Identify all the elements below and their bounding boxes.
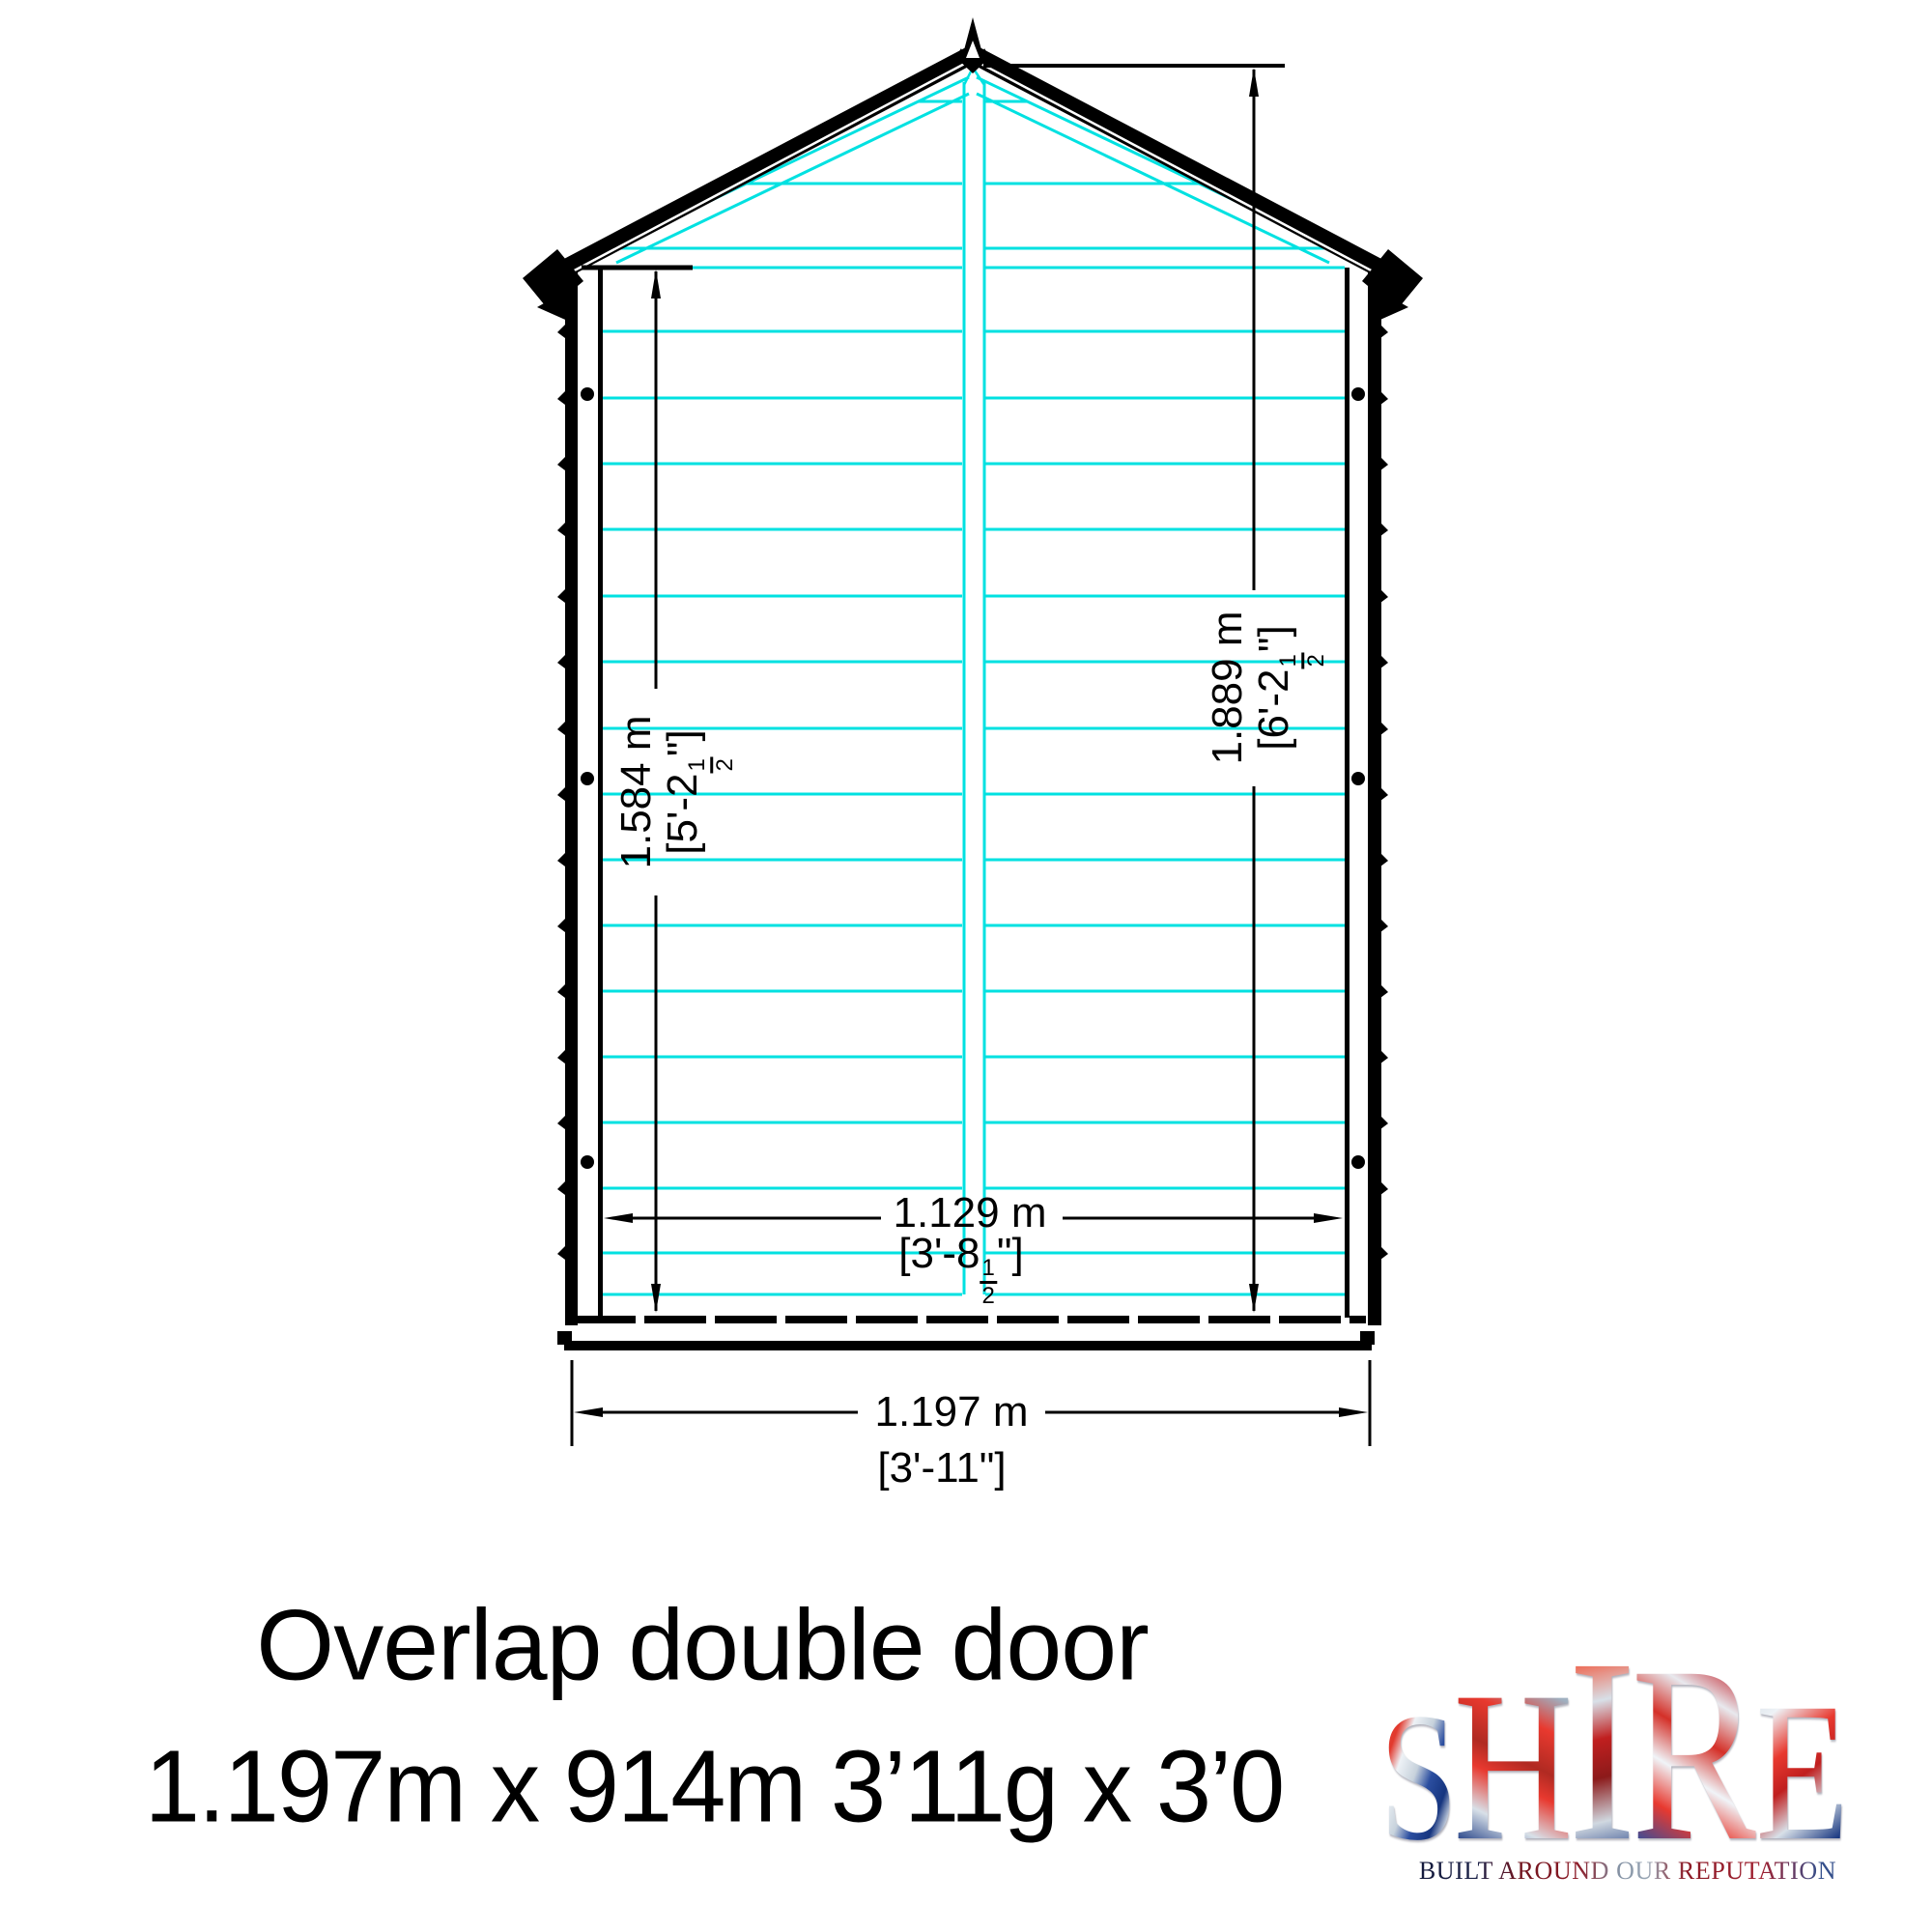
fraction-denominator: 2 <box>982 1284 995 1308</box>
dim-right-height-label: 1.889 m [6'-212"] <box>1205 611 1328 765</box>
imp-prefix: [5'-2 <box>659 773 706 854</box>
fraction-denominator: 2 <box>1304 654 1328 667</box>
left-wall-inner <box>598 268 603 1318</box>
right-wall-inner <box>1345 268 1350 1318</box>
imp-prefix: [3'-8 <box>898 1230 980 1277</box>
logo-letter-s: S <box>1379 1686 1454 1869</box>
dim-outer-width-imperial: [3'-11"] <box>877 1445 1006 1492</box>
fraction-numerator: 1 <box>1277 652 1304 668</box>
fraction-numerator: 1 <box>980 1257 997 1284</box>
dim-inner-width-imperial: [3'-812"] <box>898 1231 1023 1308</box>
fraction: 12 <box>1277 652 1328 668</box>
logo-letter-i: I <box>1569 1619 1632 1882</box>
fraction-numerator: 1 <box>686 756 713 773</box>
imp-suffix: "] <box>659 729 706 756</box>
shed-elevation-drawing: 1.584 m [5'-212"] 1.889 m [6'-212"] 1.12… <box>0 0 1932 1932</box>
right-wall-outer <box>1368 264 1381 1325</box>
product-title: Overlap double door <box>256 1589 1148 1704</box>
dim-left-height-label: 1.584 m [5'-212"] <box>613 716 737 869</box>
logo-tagline: BUILT AROUND OUR REPUTATION <box>1419 1857 1836 1886</box>
product-dimensions-text: 1.197m x 914m 3’11g x 3’0 <box>145 1729 1283 1846</box>
imp-prefix: [6'-2 <box>1250 668 1297 750</box>
logo-letter-r: R <box>1632 1629 1756 1880</box>
door-centre-frame <box>964 82 984 1294</box>
fraction: 12 <box>980 1257 997 1308</box>
left-wall-outer <box>565 264 578 1325</box>
dim-left-height-imperial: [5'-212"] <box>660 716 737 869</box>
shire-logo: S H I R E <box>1379 1619 1844 1882</box>
fraction: 12 <box>686 756 737 773</box>
dim-left-height-metric: 1.584 m <box>613 716 660 869</box>
gable-truss-lines <box>601 68 1345 263</box>
dim-right-height-imperial: [6'-212"] <box>1251 611 1328 765</box>
logo-letter-h: H <box>1454 1660 1569 1874</box>
dim-outer-width-metric: 1.197 m <box>875 1389 1029 1435</box>
fraction-denominator: 2 <box>713 758 737 771</box>
floor-base <box>557 1320 1375 1346</box>
dim-right-height-metric: 1.889 m <box>1205 611 1251 765</box>
imp-suffix: "] <box>997 1230 1024 1277</box>
imp-suffix: "] <box>1250 625 1297 652</box>
logo-letter-e: E <box>1756 1673 1845 1871</box>
roof <box>523 17 1423 323</box>
